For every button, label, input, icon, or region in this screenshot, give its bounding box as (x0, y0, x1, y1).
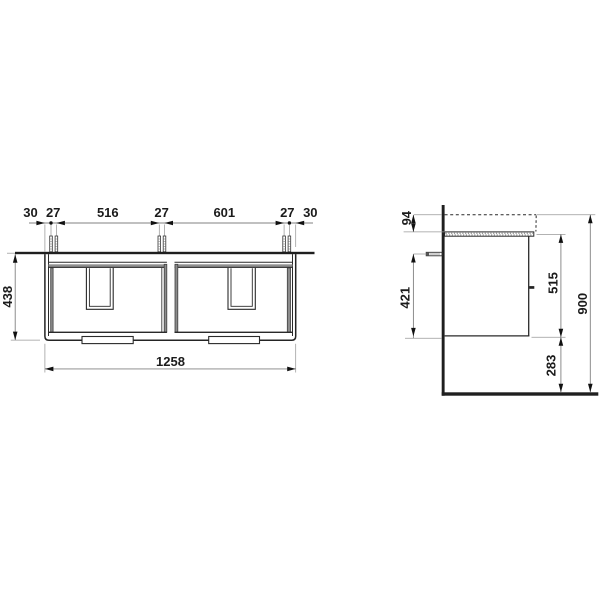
svg-text:516: 516 (97, 205, 119, 220)
svg-text:515: 515 (545, 272, 560, 294)
svg-text:30: 30 (303, 205, 317, 220)
svg-text:900: 900 (575, 293, 590, 315)
svg-text:421: 421 (398, 287, 413, 309)
svg-text:27: 27 (280, 205, 294, 220)
svg-text:283: 283 (544, 355, 559, 377)
svg-text:27: 27 (154, 205, 168, 220)
svg-text:30: 30 (23, 205, 37, 220)
svg-text:27: 27 (46, 205, 60, 220)
svg-text:601: 601 (213, 205, 235, 220)
svg-text:94: 94 (399, 210, 414, 225)
svg-text:1258: 1258 (156, 354, 185, 369)
svg-text:438: 438 (0, 286, 15, 308)
